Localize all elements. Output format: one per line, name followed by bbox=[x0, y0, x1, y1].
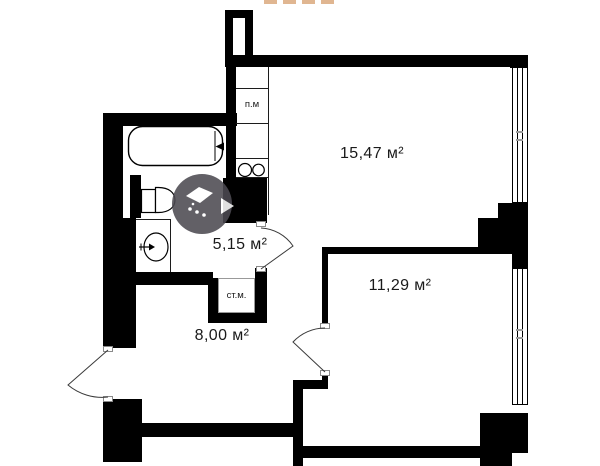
room-door-arc bbox=[293, 328, 325, 372]
toilet-tank bbox=[142, 190, 156, 213]
entrance-door-arc bbox=[68, 350, 108, 397]
stove-burners-icon bbox=[253, 164, 265, 176]
developer-logo-watermark bbox=[172, 174, 234, 234]
bathtub-icon bbox=[129, 127, 223, 166]
room-area-label: 11,29 м² bbox=[369, 277, 432, 295]
washing-machine-cell: ст.м. bbox=[218, 278, 255, 313]
washer-place-label: п.м bbox=[236, 99, 268, 110]
toilet-icon bbox=[156, 188, 176, 213]
fixtures-layer bbox=[0, 0, 600, 466]
room-area-label: 5,15 м² bbox=[213, 236, 268, 254]
washing-machine-label: ст.м. bbox=[227, 290, 247, 301]
floor-plan: ст.м. п.м 15,47 м² 11,29 м² 5,15 м² 8,00… bbox=[0, 0, 600, 466]
room-area-label: 15,47 м² bbox=[340, 145, 404, 163]
stove-burners-icon bbox=[239, 164, 252, 177]
room-area-label: 8,00 м² bbox=[195, 327, 250, 345]
